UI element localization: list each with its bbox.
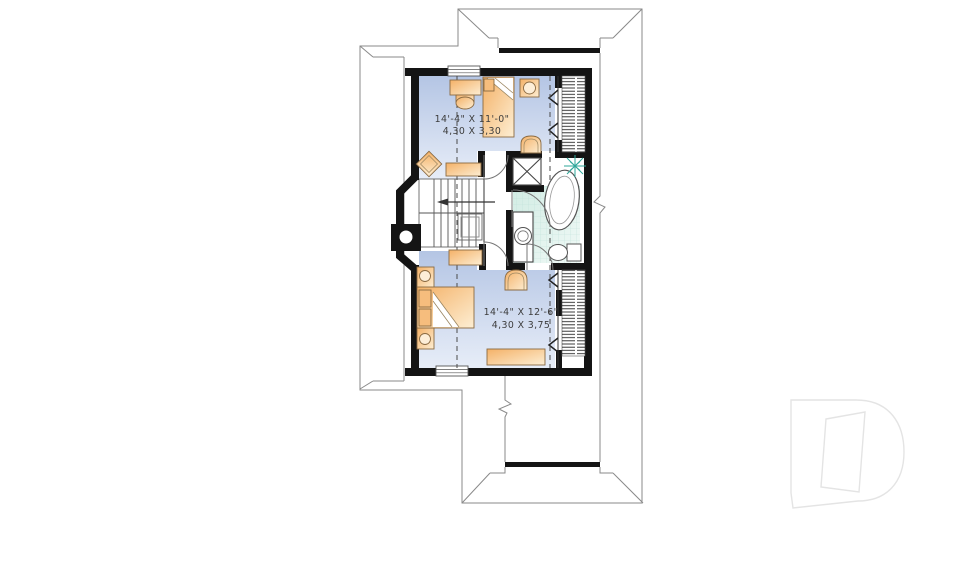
watermark-d-logo	[791, 400, 904, 508]
chimney-icon	[391, 224, 421, 251]
bedroom-1-dim-metric: 4,30 X 3,30	[443, 126, 502, 137]
bed-icon	[417, 287, 474, 328]
bedroom-2-dim-imperial: 14'-4" X 12'-6"	[484, 307, 559, 318]
desk-chair-icon	[456, 97, 474, 109]
shelf-icon	[446, 163, 481, 176]
floor-plan-drawing: 14'-4" X 11'-0" 4,30 X 3,30 14'-4" X 12'…	[0, 0, 960, 569]
toilet-icon	[549, 244, 582, 261]
window-icon	[448, 66, 480, 76]
nightstand-icon	[417, 267, 434, 288]
break-line-icon	[462, 376, 511, 503]
bedroom-1-dim-imperial: 14'-4" X 11'-0"	[435, 114, 510, 125]
stair-direction-arrow-icon	[437, 199, 495, 206]
dresser-icon	[487, 349, 545, 365]
shelf-icon	[449, 250, 482, 265]
dormer-wall-bottom	[505, 462, 600, 467]
bedroom-2-dim-metric: 4,30 X 3,75	[492, 320, 551, 331]
desk-icon	[450, 80, 481, 95]
starburst-icon	[564, 155, 586, 177]
stairs	[419, 179, 484, 247]
floor-plan-page: 14'-4" X 11'-0" 4,30 X 3,30 14'-4" X 12'…	[0, 0, 960, 569]
bedroom-1-door-arc	[484, 155, 508, 179]
nightstand-icon	[417, 328, 434, 349]
break-line-icon	[594, 53, 643, 503]
stairwell-bump-wall	[400, 177, 415, 269]
vanity-sink-icon	[513, 212, 533, 262]
dormer-wall-top	[499, 48, 600, 53]
stool-icon	[520, 79, 539, 97]
shower-x-icon	[513, 158, 541, 185]
window-icon	[436, 366, 468, 376]
bedroom-2-door-arc	[484, 242, 508, 266]
